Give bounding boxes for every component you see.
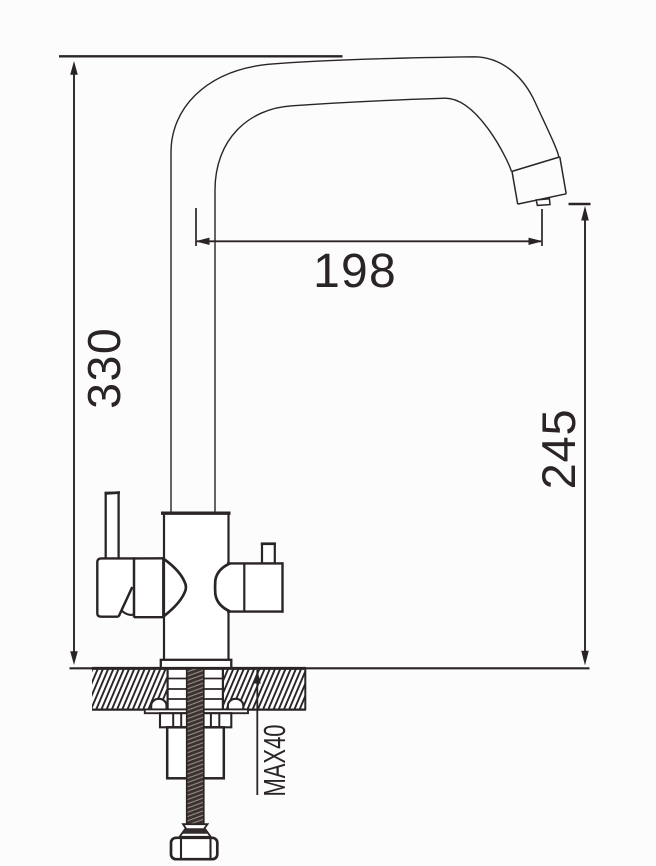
svg-text:245: 245 [532, 409, 585, 490]
svg-text:198: 198 [313, 245, 397, 298]
svg-text:MAX40: MAX40 [257, 725, 292, 797]
svg-text:330: 330 [78, 327, 130, 409]
